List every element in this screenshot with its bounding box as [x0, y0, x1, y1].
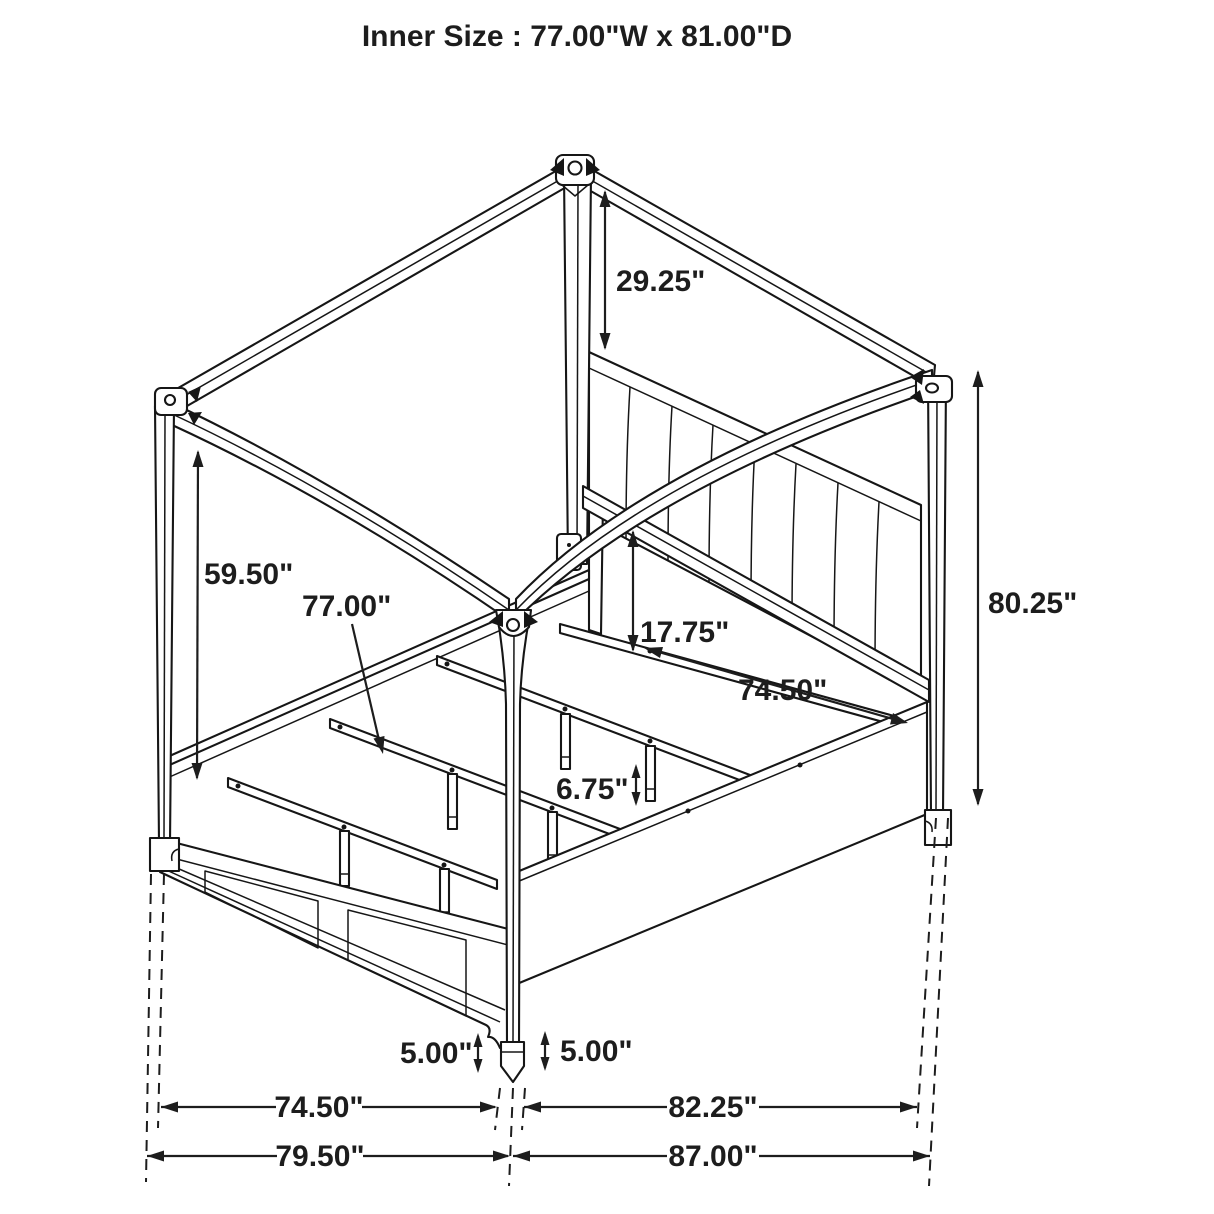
right-side-rail [512, 702, 927, 986]
screw-hole [507, 619, 519, 631]
canopy-frame-back [166, 160, 935, 417]
diagram-title: Inner Size : 77.00"W x 81.00"D [362, 20, 792, 53]
dim-left-foot-height: 5.00" [400, 1033, 483, 1073]
dim-label: 29.25" [616, 265, 705, 298]
dim-label: 87.00" [668, 1140, 757, 1173]
right-post [925, 378, 951, 845]
bed-dimension-diagram: Inner Size : 77.00"W x 81.00"D [0, 0, 1214, 1214]
dim-label: 80.25" [988, 587, 1077, 620]
dim-inner-width: 74.50" [161, 1091, 497, 1124]
dim-overall-height: 80.25" [973, 370, 1078, 806]
dim-inner-depth: 82.25" [524, 1091, 917, 1124]
screw-hole [165, 395, 175, 405]
dim-label: 79.50" [275, 1140, 364, 1173]
dim-label: 74.50" [738, 674, 827, 707]
slat-leg [646, 746, 655, 801]
canopy-bed-drawing: Inner Size : 77.00"W x 81.00"D [0, 0, 1214, 1214]
dim-label: 82.25" [668, 1091, 757, 1124]
left-post [150, 406, 179, 871]
dim-label: 5.00" [560, 1035, 633, 1068]
dim-label: 5.00" [400, 1037, 473, 1070]
dim-label: 17.75" [640, 616, 729, 649]
dim-slat-leg-height: 6.75" [556, 764, 641, 806]
slat-leg [561, 714, 570, 769]
dim-overall-depth: 87.00" [513, 1140, 930, 1173]
slat-leg [340, 831, 349, 886]
dim-label: 6.75" [556, 773, 629, 806]
front-post-foot [501, 1042, 524, 1082]
left-post-foot [150, 838, 179, 871]
screw-hole [569, 162, 582, 175]
dim-right-foot-height: 5.00" [541, 1031, 633, 1071]
dim-label: 74.50" [274, 1091, 363, 1124]
dim-label: 77.00" [302, 590, 391, 623]
slat-rail [437, 656, 750, 784]
slat-leg [448, 774, 457, 829]
screw-hole [926, 384, 938, 393]
dim-overall-width: 79.50" [147, 1140, 510, 1173]
dim-label: 59.50" [204, 558, 293, 591]
